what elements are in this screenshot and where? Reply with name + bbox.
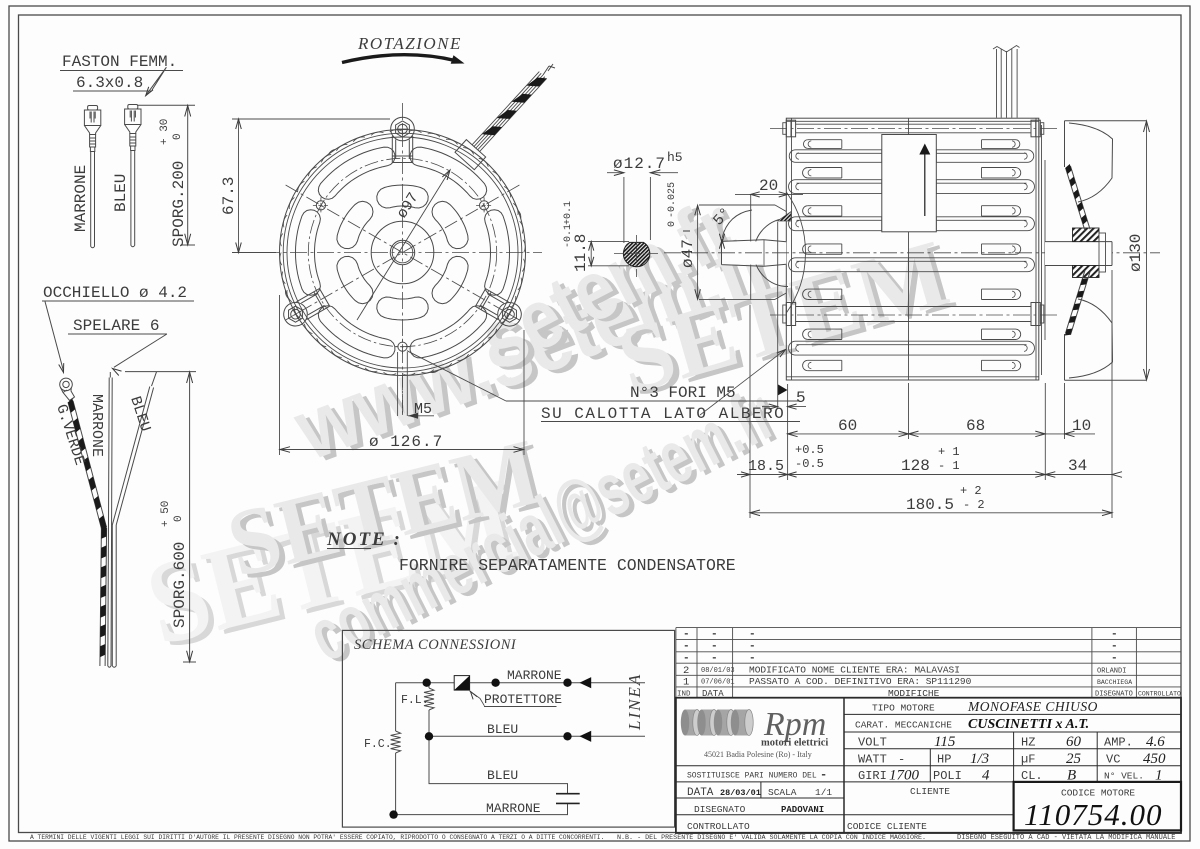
svg-text:SOSTITUISCE PARI NUMERO DEL: SOSTITUISCE PARI NUMERO DEL: [687, 772, 817, 781]
svg-text:34: 34: [1068, 457, 1087, 475]
svg-text:SCHEMA CONNESSIONI: SCHEMA CONNESSIONI: [354, 637, 517, 653]
svg-text:450: 450: [1143, 751, 1166, 767]
svg-text:CLIENTE: CLIENTE: [910, 786, 950, 797]
svg-text:07/06/01: 07/06/01: [701, 679, 735, 687]
svg-text:60: 60: [838, 417, 857, 435]
svg-text:+ 30: + 30: [159, 119, 171, 145]
svg-text:+ 50: + 50: [160, 501, 172, 527]
svg-text:DISEGNATO: DISEGNATO: [694, 804, 746, 815]
svg-text:CARAT. MECCANICHE: CARAT. MECCANICHE: [855, 720, 952, 731]
svg-text:128: 128: [901, 457, 930, 475]
svg-text:motori elettrici: motori elettrici: [761, 738, 828, 749]
svg-text:ROTAZIONE: ROTAZIONE: [357, 34, 462, 53]
svg-text:4: 4: [982, 768, 990, 784]
svg-text:ORLANDI: ORLANDI: [1097, 668, 1126, 676]
svg-text:-: -: [1111, 629, 1118, 641]
svg-text:F.C.: F.C.: [364, 738, 392, 751]
svg-text:0: 0: [667, 221, 678, 227]
svg-text:-0.025: -0.025: [667, 182, 678, 218]
svg-text:CUSCINETTI x A.T.: CUSCINETTI x A.T.: [968, 717, 1089, 732]
svg-text:67.3: 67.3: [220, 177, 238, 215]
svg-text:MARRONE: MARRONE: [88, 394, 105, 457]
svg-text:HP: HP: [937, 753, 951, 767]
svg-text:CODICE CLIENTE: CODICE CLIENTE: [847, 821, 927, 832]
svg-text:BLEU: BLEU: [487, 768, 518, 783]
svg-text:0: 0: [172, 133, 184, 140]
svg-text:-: -: [898, 753, 905, 767]
svg-text:h5: h5: [667, 150, 683, 165]
svg-text:25: 25: [1066, 751, 1082, 767]
svg-text:-: -: [711, 641, 718, 653]
svg-text:4.6: 4.6: [1146, 734, 1165, 750]
svg-text:-: -: [820, 768, 827, 782]
svg-text:SU CALOTTA LATO ALBERO: SU CALOTTA LATO ALBERO: [541, 405, 785, 423]
svg-text:WATT: WATT: [858, 753, 887, 767]
svg-text:MONOFASE CHIUSO: MONOFASE CHIUSO: [967, 699, 1098, 714]
svg-text:CONTROLLATO: CONTROLLATO: [1138, 691, 1181, 698]
svg-text:1700: 1700: [889, 768, 920, 784]
svg-text:28/03/01: 28/03/01: [720, 788, 761, 798]
svg-text:VC: VC: [1106, 753, 1120, 767]
svg-text:BACCHIEGA: BACCHIEGA: [1097, 679, 1132, 686]
svg-text:PASSATO A COD. DEFINITIVO ERA:: PASSATO A COD. DEFINITIVO ERA: SP111290: [749, 676, 972, 687]
svg-text:N° VEL.: N° VEL.: [1104, 771, 1144, 782]
svg-text:5: 5: [796, 389, 806, 407]
svg-text:POLI: POLI: [933, 769, 962, 783]
svg-text:1/3: 1/3: [970, 751, 989, 767]
svg-text:CONTROLLATO: CONTROLLATO: [687, 821, 750, 832]
svg-text:115: 115: [934, 734, 956, 750]
svg-text:45021 Badia Polesine (Ro) - It: 45021 Badia Polesine (Ro) - Italy: [704, 750, 812, 759]
svg-text:-: -: [711, 653, 718, 665]
svg-text:-: -: [683, 653, 690, 665]
svg-text:+ 1: + 1: [938, 445, 960, 459]
svg-text:AMP.: AMP.: [1104, 736, 1133, 750]
svg-text:-: -: [1111, 641, 1118, 653]
svg-text:-: -: [683, 641, 690, 653]
svg-text:+0.5: +0.5: [795, 443, 824, 457]
svg-text:-: -: [683, 629, 690, 641]
svg-text:ø130: ø130: [1127, 234, 1145, 272]
svg-text:08/01/03: 08/01/03: [701, 667, 735, 675]
svg-text:BLEU: BLEU: [112, 174, 130, 212]
svg-text:+ 2: + 2: [960, 484, 982, 498]
svg-text:DATA: DATA: [687, 787, 714, 799]
svg-text:-: -: [711, 629, 718, 641]
svg-text:18.5: 18.5: [748, 458, 784, 475]
svg-text:-: -: [749, 653, 756, 665]
svg-text:DISEGNO ESEGUITO A CAD - VIETA: DISEGNO ESEGUITO A CAD - VIETATA LA MODI…: [957, 834, 1175, 842]
svg-text:µF: µF: [1021, 753, 1035, 767]
svg-text:1: 1: [683, 677, 689, 689]
svg-text:LINEA: LINEA: [625, 673, 644, 731]
svg-text:- 2: - 2: [963, 498, 985, 512]
svg-text:SPELARE 6: SPELARE 6: [73, 317, 159, 335]
svg-text:M5: M5: [414, 401, 432, 418]
svg-text:PADOVANI: PADOVANI: [781, 805, 824, 815]
svg-text:SCALA: SCALA: [768, 787, 797, 798]
svg-text:20: 20: [759, 177, 778, 195]
svg-text:6.3x0.8: 6.3x0.8: [76, 74, 143, 92]
svg-text:-: -: [1111, 653, 1118, 665]
svg-text:A TERMINI DELLE VIGENTI LEGGI: A TERMINI DELLE VIGENTI LEGGI SUI DIRITT…: [30, 834, 604, 841]
svg-text:68: 68: [966, 417, 985, 435]
svg-text:MARRONE: MARRONE: [72, 165, 90, 232]
svg-text:-: -: [749, 629, 756, 641]
svg-text:MARRONE: MARRONE: [507, 668, 562, 683]
svg-text:ø12.7: ø12.7: [613, 155, 666, 173]
svg-text:VOLT: VOLT: [858, 736, 887, 750]
svg-text:SPORG.200: SPORG.200: [170, 161, 188, 247]
svg-text:ø 126.7: ø 126.7: [369, 433, 443, 451]
svg-text:110754.00: 110754.00: [1024, 797, 1162, 832]
svg-text:F.L.: F.L.: [401, 694, 429, 707]
svg-text:-0.1: -0.1: [563, 224, 574, 248]
svg-text:N.B. - DEL PRESENTE DISEGNO E': N.B. - DEL PRESENTE DISEGNO E' VALIDA SO…: [617, 834, 926, 842]
svg-text:SPORG.600: SPORG.600: [171, 542, 189, 628]
svg-text:NOTE :: NOTE :: [326, 529, 402, 550]
svg-text:OCCHIELLO ø 4.2: OCCHIELLO ø 4.2: [43, 284, 187, 302]
svg-text:2: 2: [683, 665, 689, 677]
svg-text:GIRI: GIRI: [858, 769, 887, 783]
svg-text:180.5: 180.5: [906, 496, 954, 514]
svg-text:-0.5: -0.5: [795, 457, 824, 471]
svg-text:HZ: HZ: [1021, 736, 1035, 750]
svg-text:1/1: 1/1: [815, 787, 832, 798]
svg-text:11.8: 11.8: [572, 234, 590, 272]
svg-text:BLEU: BLEU: [487, 722, 518, 737]
svg-text:FORNIRE SEPARATAMENTE CONDENSA: FORNIRE SEPARATAMENTE CONDENSATORE: [399, 556, 736, 575]
svg-text:-: -: [749, 641, 756, 653]
svg-text:MARRONE: MARRONE: [486, 801, 541, 816]
svg-text:60: 60: [1066, 734, 1082, 750]
svg-text:FASTON FEMM.: FASTON FEMM.: [62, 53, 177, 71]
svg-text:+0.1: +0.1: [563, 201, 574, 225]
svg-text:ø47: ø47: [679, 239, 697, 268]
svg-text:0: 0: [173, 515, 185, 522]
svg-text:MODIFICATO NOME CLIENTE ERA: M: MODIFICATO NOME CLIENTE ERA: MALAVASI: [749, 665, 960, 676]
svg-text:TIPO MOTORE: TIPO MOTORE: [872, 703, 935, 714]
svg-text:10: 10: [1072, 417, 1091, 435]
svg-text:N°3 FORI M5: N°3 FORI M5: [630, 384, 736, 402]
svg-text:- 1: - 1: [938, 459, 960, 473]
svg-text:PROTETTORE: PROTETTORE: [484, 692, 562, 707]
